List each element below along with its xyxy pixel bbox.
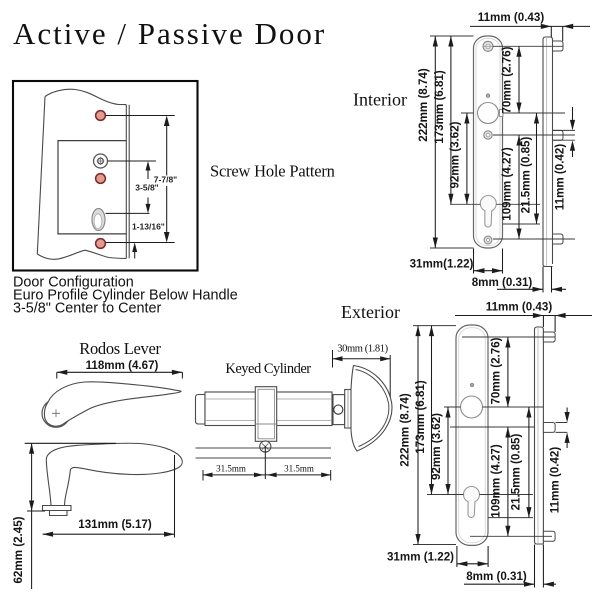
svg-text:70mm (2.76): 70mm (2.76) — [501, 46, 514, 113]
svg-text:Screw Hole Pattern: Screw Hole Pattern — [210, 162, 335, 181]
svg-text:222mm (8.74): 222mm (8.74) — [399, 393, 412, 467]
svg-text:Keyed Cylinder: Keyed Cylinder — [225, 361, 311, 377]
svg-text:31.5mm: 31.5mm — [216, 463, 246, 473]
svg-text:109mm (4.27): 109mm (4.27) — [490, 444, 503, 518]
svg-text:Interior: Interior — [353, 90, 407, 110]
svg-text:92mm (3.62): 92mm (3.62) — [430, 413, 443, 480]
svg-text:173mm (6.81): 173mm (6.81) — [414, 380, 427, 454]
svg-text:Exterior: Exterior — [341, 302, 400, 322]
svg-text:8mm (0.31): 8mm (0.31) — [466, 570, 527, 583]
svg-text:118mm (4.67): 118mm (4.67) — [86, 359, 159, 372]
svg-text:11mm (0.42): 11mm (0.42) — [549, 447, 562, 514]
svg-text:173mm (6.81): 173mm (6.81) — [433, 70, 446, 144]
svg-text:21.5mm (0.85): 21.5mm (0.85) — [509, 434, 522, 511]
svg-text:31mm (1.22): 31mm (1.22) — [387, 551, 454, 564]
svg-text:1-13/16": 1-13/16" — [132, 221, 165, 231]
svg-text:8mm (0.31): 8mm (0.31) — [472, 276, 533, 289]
svg-text:70mm (2.76): 70mm (2.76) — [489, 337, 502, 404]
svg-text:92mm (3.62): 92mm (3.62) — [449, 121, 462, 188]
svg-text:222mm (8.74): 222mm (8.74) — [417, 68, 430, 142]
svg-text:31.5mm: 31.5mm — [284, 463, 314, 473]
svg-text:11mm (0.42): 11mm (0.42) — [554, 144, 567, 211]
svg-text:11mm (0.43): 11mm (0.43) — [478, 11, 545, 24]
svg-text:109mm (4.27): 109mm (4.27) — [501, 147, 514, 221]
svg-text:3-5/8": 3-5/8" — [135, 182, 158, 192]
svg-text:3-5/8" Center to Center: 3-5/8" Center to Center — [13, 300, 161, 316]
svg-text:30mm (1.81): 30mm (1.81) — [337, 343, 388, 354]
svg-text:Rodos Lever: Rodos Lever — [79, 339, 161, 358]
svg-text:131mm (5.17): 131mm (5.17) — [78, 518, 152, 531]
svg-text:Active / Passive Door: Active / Passive Door — [13, 16, 326, 51]
svg-text:62mm (2.45): 62mm (2.45) — [12, 516, 25, 583]
svg-text:21.5mm (0.85): 21.5mm (0.85) — [520, 137, 533, 214]
svg-text:11mm (0.43): 11mm (0.43) — [486, 301, 553, 314]
svg-text:31mm(1.22): 31mm(1.22) — [410, 257, 474, 270]
